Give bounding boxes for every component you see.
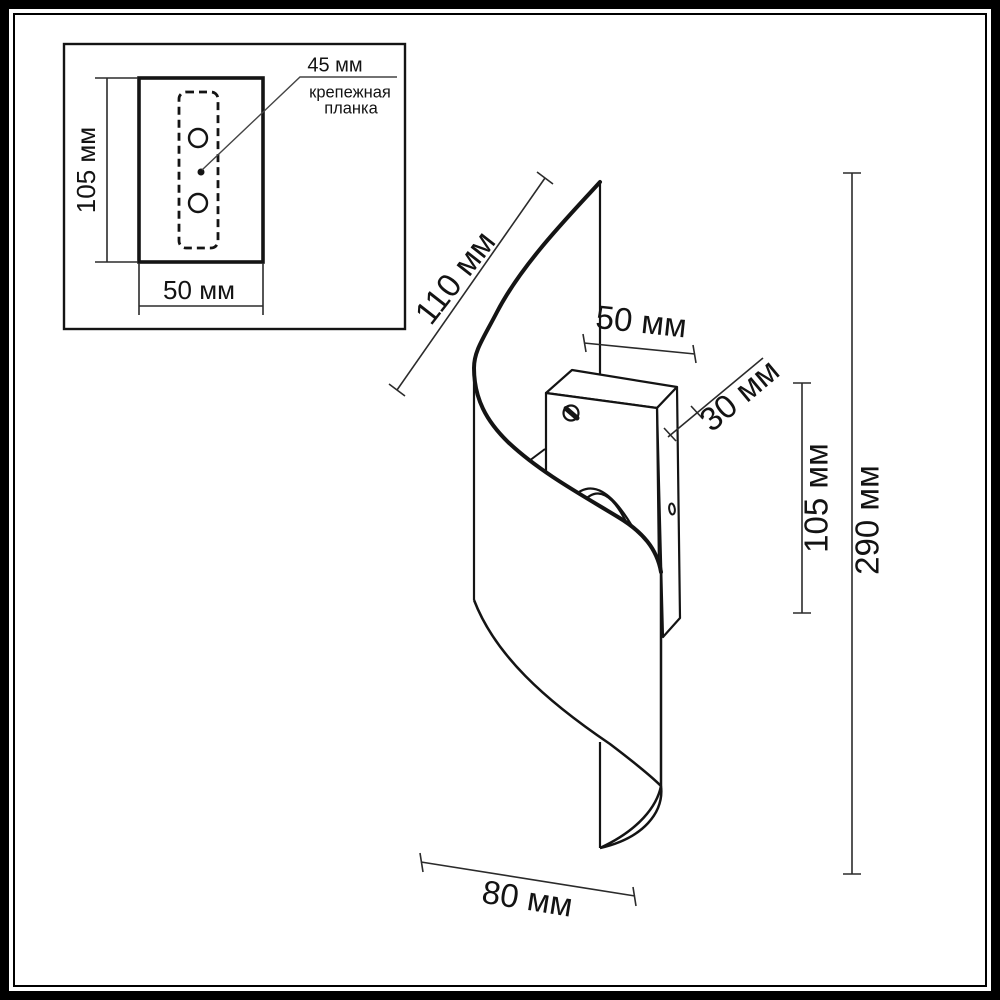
depth-label: 30 мм — [692, 351, 786, 438]
edge-length-label: 110 мм — [407, 224, 502, 331]
inset-height-label: 105 мм — [71, 127, 101, 213]
inset-labels: 105 мм 50 мм 45 мм крепежная планка — [71, 54, 391, 305]
dim-tick — [389, 384, 405, 396]
bottom-width-label: 80 мм — [479, 873, 575, 924]
total-height-label: 290 мм — [849, 465, 886, 575]
top-width-label: 50 мм — [594, 298, 689, 344]
inset-hole-spacing-label: 45 мм — [307, 54, 362, 76]
inset-height-dimension — [95, 78, 138, 262]
dim-tick — [537, 172, 553, 184]
wall-lamp-dimension-drawing: 105 мм 50 мм 45 мм крепежная планка — [0, 0, 1000, 1000]
mounting-hole-bottom — [189, 194, 207, 212]
side-hole — [668, 503, 675, 515]
inset-callout-line2: планка — [324, 99, 378, 117]
mounting-hole-top — [189, 129, 207, 147]
bracket-height-label: 105 мм — [798, 443, 835, 553]
ribbon-tip-outer-curve — [600, 786, 661, 848]
inset-width-label: 50 мм — [163, 275, 235, 305]
lamp-drawing — [474, 182, 680, 848]
